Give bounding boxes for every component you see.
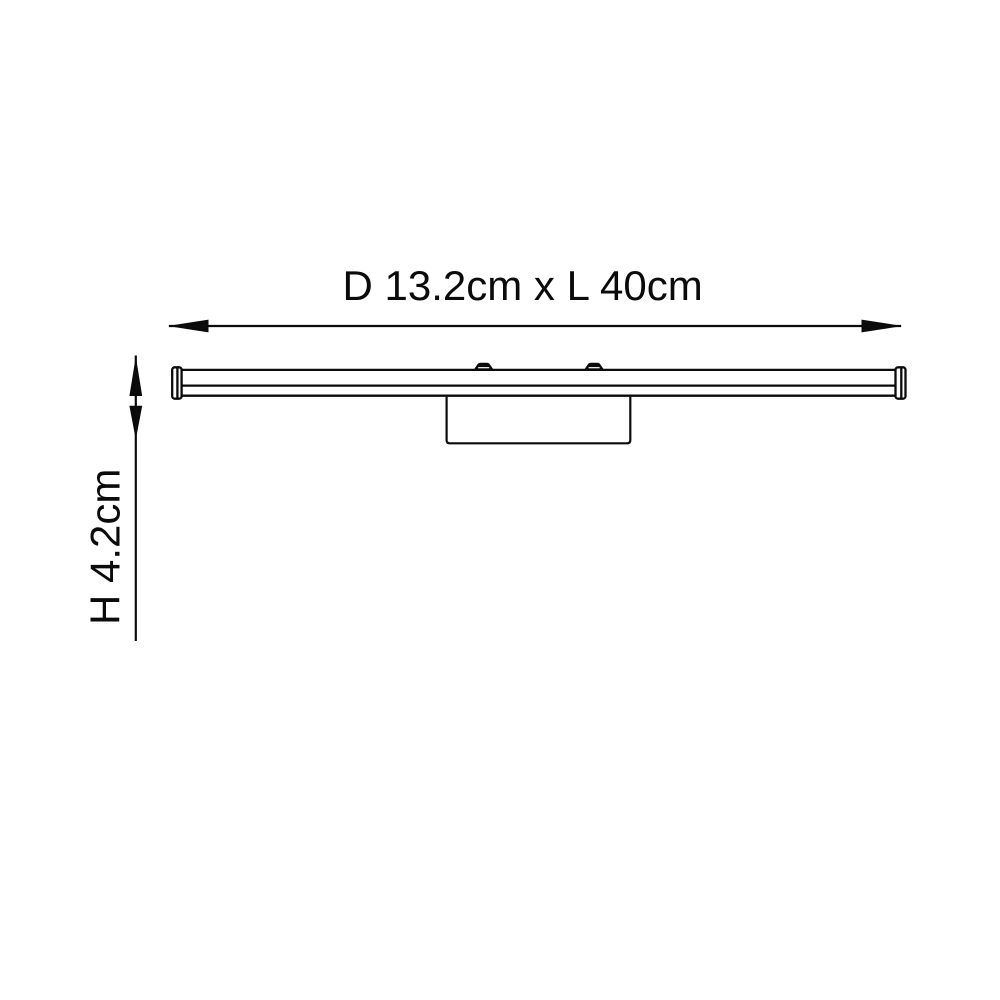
svg-text:D 13.2cm x L 40cm: D 13.2cm x L 40cm	[343, 262, 703, 309]
svg-text:H 4.2cm: H 4.2cm	[82, 469, 129, 625]
